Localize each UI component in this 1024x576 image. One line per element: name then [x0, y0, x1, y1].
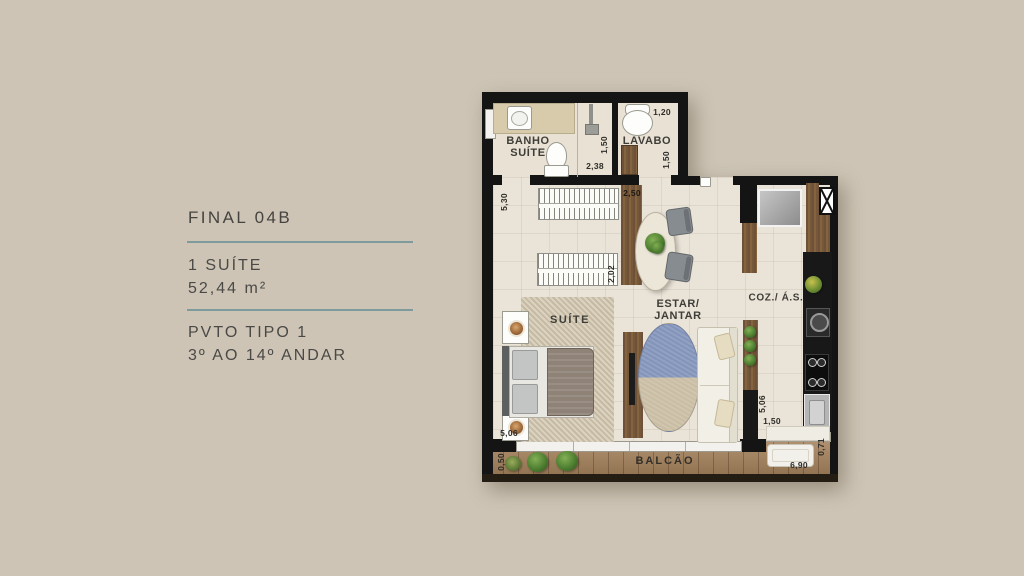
living-rug — [638, 323, 700, 432]
shelf-plant-icon — [744, 354, 756, 366]
dining-chair-1 — [665, 206, 694, 236]
floor-plan: BANHO SUÍTE LAVABO SUÍTE ESTAR/ JANTAR C… — [0, 0, 1024, 576]
duct-shaft-icon — [819, 187, 835, 215]
label-banho-line1: BANHO — [506, 135, 549, 147]
banho-sink-basin — [511, 111, 528, 126]
wardrobe-top — [538, 188, 619, 220]
wall-lavabo-right — [678, 92, 688, 185]
bed-pillow-1 — [512, 350, 538, 380]
kitchen-counter-wood-2 — [818, 212, 830, 252]
wall-entry-left — [688, 176, 700, 185]
sink-basin — [809, 400, 825, 425]
presentation-slide: FINAL 04B 1 SUÍTE 52,44 m² PVTO TIPO 1 3… — [0, 0, 1024, 576]
dim-kitchen-bottom: 1,50 — [763, 416, 781, 426]
wall-left — [482, 92, 493, 482]
sofa — [697, 327, 738, 443]
balcony-plant-icon — [527, 452, 548, 472]
tv-icon — [629, 353, 635, 405]
dim-wardrobe: 2,02 — [606, 265, 616, 283]
label-banho-line2: SUÍTE — [510, 147, 545, 159]
kitchen-island-sink — [758, 189, 802, 227]
lavabo-toilet-bowl — [622, 110, 653, 136]
cooktop — [805, 354, 829, 391]
wall-bath-bottom-c — [671, 175, 688, 185]
wall-kitchen-stub — [740, 176, 757, 223]
label-cozinha: COZ./ Á.S. — [749, 293, 804, 304]
lavabo-door — [621, 145, 638, 175]
sofa-seam — [700, 385, 729, 386]
bed-blanket — [547, 348, 594, 416]
lamp-icon — [508, 320, 525, 337]
label-suite: SUÍTE — [550, 314, 590, 326]
banho-counter — [493, 103, 575, 134]
dim-kitchen-left: 5,06 — [757, 395, 767, 413]
bed — [502, 346, 592, 416]
balcony-grass-icon — [505, 456, 521, 471]
dim-lavabo-right: 1,50 — [661, 151, 671, 169]
label-estar-line1: ESTAR/ — [656, 298, 699, 310]
dim-banho-shower: 1,50 — [599, 136, 609, 154]
shelf-plant-icon — [744, 340, 756, 352]
wall-banho-lavabo — [612, 103, 618, 177]
label-balcao: BALCÃO — [635, 455, 694, 467]
dim-banho-bottom: 2,38 — [586, 161, 604, 171]
label-estar-line2: JANTAR — [654, 310, 701, 322]
dim-balcony-right: 0,71 — [816, 438, 826, 456]
dim-suite-left: 5,30 — [499, 193, 509, 211]
washer-appliance — [806, 308, 830, 337]
dim-balcony-left: 0,50 — [496, 453, 506, 471]
label-lavabo: LAVABO — [623, 135, 671, 147]
shelf-plant-icon — [744, 326, 756, 338]
dim-partition: 2,50 — [623, 188, 641, 198]
shower-pole-icon — [589, 104, 593, 126]
dim-lavabo-top: 1,20 — [653, 107, 671, 117]
shower-head-icon — [585, 124, 599, 135]
kitchen-divider-base — [743, 390, 758, 440]
counter-plant-icon — [805, 276, 822, 293]
dining-chair-2 — [664, 251, 694, 283]
banho-sink — [507, 106, 532, 130]
table-plant-icon — [651, 241, 664, 254]
kitchen-sink-unit — [804, 394, 830, 430]
wall-balcony-bottom — [482, 474, 838, 482]
washer-drum-icon — [810, 313, 829, 332]
shower-partition — [577, 103, 578, 177]
wall-window-stub-mid — [740, 439, 766, 452]
bed-pillow-2 — [512, 384, 538, 414]
nightstand-top — [502, 311, 529, 344]
wall-bath-bottom-a — [482, 175, 502, 185]
balcony-plant-icon — [556, 451, 578, 471]
wall-top — [482, 92, 688, 103]
entry-door-leaf — [700, 177, 711, 187]
entry-cabinet — [742, 223, 757, 273]
banho-toilet-tank — [544, 165, 569, 177]
dim-balcony-bottom: 6,90 — [790, 460, 808, 470]
dim-suite-bottom: 5,06 — [500, 428, 518, 438]
